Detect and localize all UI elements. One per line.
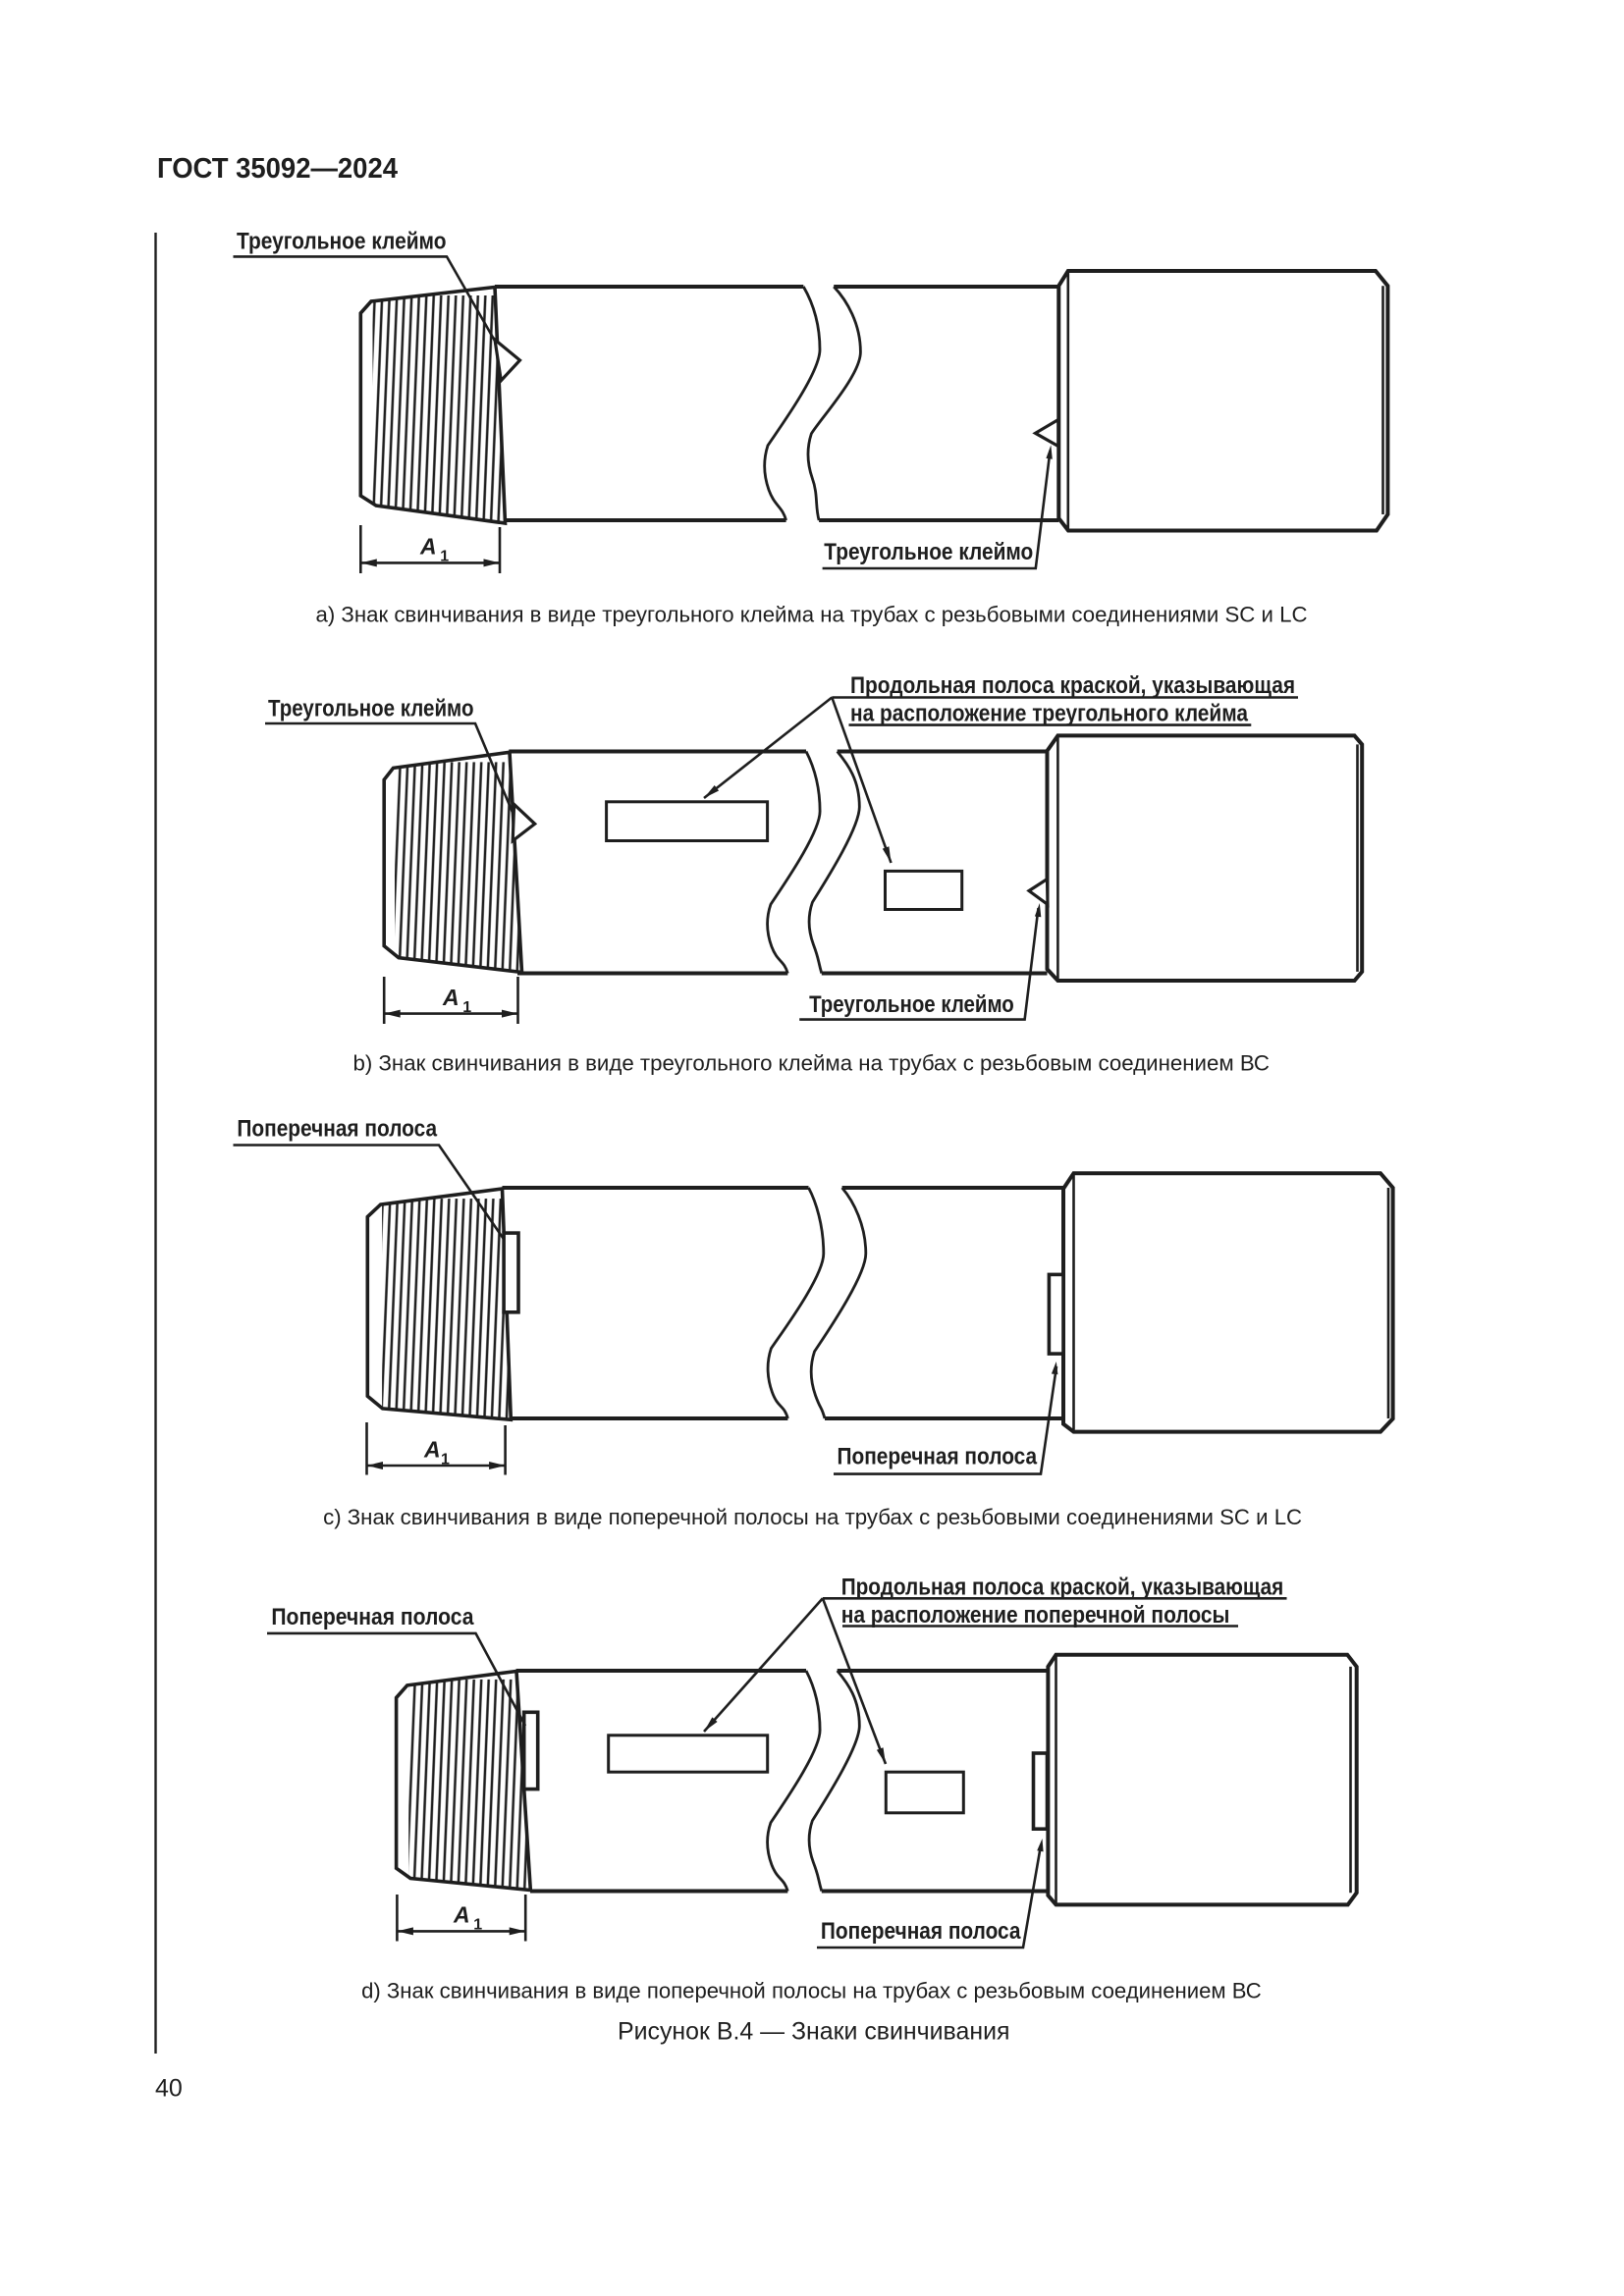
svg-text:A: A — [423, 1436, 441, 1462]
svg-text:A: A — [442, 985, 460, 1010]
svg-text:1: 1 — [462, 999, 471, 1016]
svg-text:Рисунок В.4 — Знаки свинчивани: Рисунок В.4 — Знаки свинчивания — [618, 2017, 1010, 2045]
svg-text:b) Знак свинчивания в виде тре: b) Знак свинчивания в виде треугольного … — [353, 1051, 1271, 1076]
svg-text:Треугольное клеймо: Треугольное клеймо — [268, 696, 474, 722]
svg-text:Треугольное клеймо: Треугольное клеймо — [809, 991, 1014, 1018]
svg-text:A: A — [453, 1902, 470, 1928]
svg-text:1: 1 — [473, 1917, 482, 1934]
svg-text:d) Знак свинчивания в виде поп: d) Знак свинчивания в виде поперечной по… — [361, 1978, 1262, 2002]
svg-text:Продольная полоса краской, ука: Продольная полоса краской, указывающая — [841, 1575, 1284, 1601]
svg-text:ГОСТ 35092—2024: ГОСТ 35092—2024 — [157, 153, 398, 185]
svg-text:Треугольное клеймо: Треугольное клеймо — [237, 228, 447, 254]
svg-text:1: 1 — [441, 1451, 450, 1468]
svg-text:Продольная полоса краской, ука: Продольная полоса краской, указывающая — [850, 672, 1295, 699]
svg-text:c) Знак свинчивания в виде поп: c) Знак свинчивания в виде поперечной по… — [323, 1505, 1302, 1529]
svg-text:на расположение треугольного к: на расположение треугольного клейма — [850, 700, 1249, 726]
svg-text:Поперечная полоса: Поперечная полоса — [821, 1918, 1021, 1945]
svg-text:40: 40 — [155, 2075, 183, 2103]
svg-text:на расположение поперечной пол: на расположение поперечной полосы — [841, 1602, 1230, 1629]
svg-text:Треугольное клеймо: Треугольное клеймо — [824, 539, 1033, 565]
svg-text:Поперечная полоса: Поперечная полоса — [271, 1604, 474, 1630]
svg-text:1: 1 — [440, 549, 449, 565]
svg-text:Поперечная полоса: Поперечная полоса — [838, 1444, 1038, 1470]
svg-text:Поперечная полоса: Поперечная полоса — [237, 1116, 437, 1143]
svg-text:a) Знак свинчивания в виде тре: a) Знак свинчивания в виде треугольного … — [316, 603, 1308, 627]
svg-text:A: A — [419, 534, 437, 560]
